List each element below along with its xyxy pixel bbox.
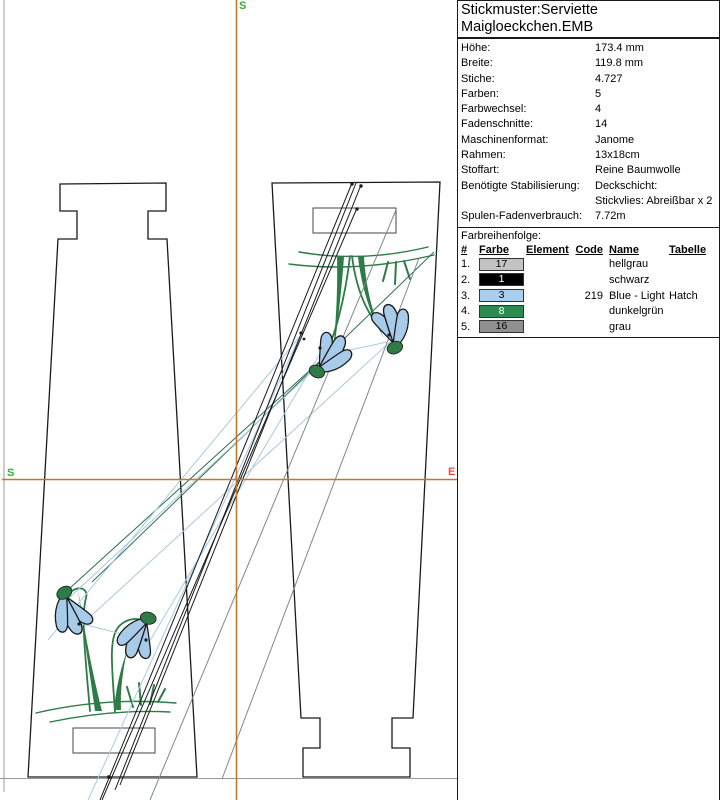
detail-row: Stiche:4.727 <box>461 72 719 87</box>
travel-stitch-line <box>115 183 356 790</box>
travel-stitch-line <box>100 183 352 800</box>
row-name: schwarz <box>607 274 669 286</box>
travel-stitch-line <box>150 210 396 800</box>
row-num: 3. <box>461 290 479 302</box>
travel-stitches-teal <box>70 252 434 588</box>
header-element: Element <box>526 244 571 256</box>
detail-label: Rahmen: <box>461 148 595 163</box>
color-swatch[interactable]: 1 <box>479 273 524 286</box>
color-swatch[interactable]: 16 <box>479 320 524 333</box>
row-num: 1. <box>461 258 479 270</box>
detail-value: 119.8 mm <box>595 56 719 71</box>
row-name: Blue - Light <box>607 290 669 302</box>
detail-value: 5 <box>595 87 719 102</box>
color-swatch[interactable]: 8 <box>479 305 524 318</box>
detail-value: 13x18cm <box>595 148 719 163</box>
row-num: 5. <box>461 321 479 333</box>
detail-row: Farbwechsel:4 <box>461 102 719 117</box>
row-name: grau <box>607 321 669 333</box>
detail-row: Höhe:173.4 mm <box>461 41 719 56</box>
detail-row: Benötigte Stabilisierung:Deckschicht: St… <box>461 179 719 210</box>
label-rect-left[interactable] <box>73 728 155 753</box>
color-table-row: 5. 16 grau <box>461 319 719 335</box>
row-name: dunkelgrün <box>607 305 669 317</box>
row-num: 4. <box>461 305 479 317</box>
header-name: Name <box>607 244 669 256</box>
row-code: 219 <box>571 290 607 302</box>
detail-row: Stoffart:Reine Baumwolle <box>461 163 719 178</box>
travel-stitch-line <box>102 208 357 800</box>
row-num: 2. <box>461 274 479 286</box>
header-farbe: Farbe <box>479 244 526 256</box>
design-details: Höhe:173.4 mm Breite:119.8 mm Stiche:4.7… <box>457 39 720 228</box>
header-tabelle: Tabelle <box>669 244 719 256</box>
start-marker-top: S <box>239 0 246 12</box>
embroidery-app-window: S S E Stickmuster:Serviette Maigloeckche… <box>0 0 720 800</box>
detail-row: Fadenschnitte:14 <box>461 117 719 132</box>
detail-label: Farben: <box>461 87 595 102</box>
color-table-row: 4. 8 dunkelgrün <box>461 303 719 319</box>
color-table-row: 2. 1 schwarz <box>461 272 719 288</box>
detail-value: Deckschicht: Stickvlies: Abreißbar x 2 <box>595 179 719 210</box>
design-title-line1: Stickmuster:Serviette <box>461 2 717 19</box>
detail-label: Benötigte Stabilisierung: <box>461 179 595 210</box>
design-title-line2: Maigloeckchen.EMB <box>461 19 717 36</box>
color-table-row: 3. 3 219 Blue - Light Hatch <box>461 288 719 304</box>
color-table-header: # Farbe Element Code Name Tabelle <box>461 243 719 257</box>
detail-value: 173.4 mm <box>595 41 719 56</box>
detail-row: Maschinenformat:Janome <box>461 133 719 148</box>
detail-value: 14 <box>595 117 719 132</box>
panel-empty-area <box>457 338 720 800</box>
color-swatch[interactable]: 3 <box>479 289 524 302</box>
detail-value: 7.72m <box>595 209 719 224</box>
travel-stitch-line <box>67 365 319 600</box>
detail-label: Stiche: <box>461 72 595 87</box>
detail-value: Reine Baumwolle <box>595 163 719 178</box>
detail-label: Farbwechsel: <box>461 102 595 117</box>
start-marker-left: S <box>7 467 14 479</box>
travel-stitch-line <box>120 185 361 785</box>
design-canvas[interactable]: S S E <box>0 0 457 800</box>
row-tabelle: Hatch <box>669 290 719 302</box>
design-canvas-area[interactable]: S S E <box>0 0 457 800</box>
detail-value: 4 <box>595 102 719 117</box>
detail-row: Rahmen:13x18cm <box>461 148 719 163</box>
design-info-panel: Stickmuster:Serviette Maigloeckchen.EMB … <box>457 0 720 800</box>
flower-snowdrop[interactable] <box>111 606 164 664</box>
color-table-row: 1. 17 hellgrau <box>461 257 719 273</box>
color-swatch[interactable]: 17 <box>479 258 524 271</box>
detail-row: Spulen-Fadenverbrauch:7.72m <box>461 209 719 224</box>
detail-row: Farben:5 <box>461 87 719 102</box>
header-num: # <box>461 244 479 256</box>
detail-value: Janome <box>595 133 719 148</box>
detail-label: Breite: <box>461 56 595 71</box>
detail-row: Breite:119.8 mm <box>461 56 719 71</box>
row-name: hellgrau <box>607 258 669 270</box>
travel-stitches-blue <box>48 334 391 800</box>
detail-label: Höhe: <box>461 41 595 56</box>
detail-label: Stoffart: <box>461 163 595 178</box>
end-marker-right: E <box>448 466 455 478</box>
label-rect-right[interactable] <box>313 208 396 233</box>
flower-snowdrop[interactable] <box>301 326 360 388</box>
flower-snowdrop[interactable] <box>365 298 423 359</box>
travel-stitch-line <box>80 341 391 626</box>
header-code: Code <box>571 244 607 256</box>
detail-label: Fadenschnitte: <box>461 117 595 132</box>
color-sequence-section: Farbreihenfolge: # Farbe Element Code Na… <box>457 228 720 338</box>
travel-stitches-gray <box>150 210 419 800</box>
design-title-box: Stickmuster:Serviette Maigloeckchen.EMB <box>457 0 720 39</box>
detail-label: Maschinenformat: <box>461 133 595 148</box>
detail-label: Spulen-Fadenverbrauch: <box>461 209 595 224</box>
detail-value: 4.727 <box>595 72 719 87</box>
travel-stitches-black <box>100 183 361 800</box>
color-sequence-label: Farbreihenfolge: <box>461 229 719 243</box>
crosshair <box>2 0 457 800</box>
travel-stitch-line <box>70 362 319 588</box>
